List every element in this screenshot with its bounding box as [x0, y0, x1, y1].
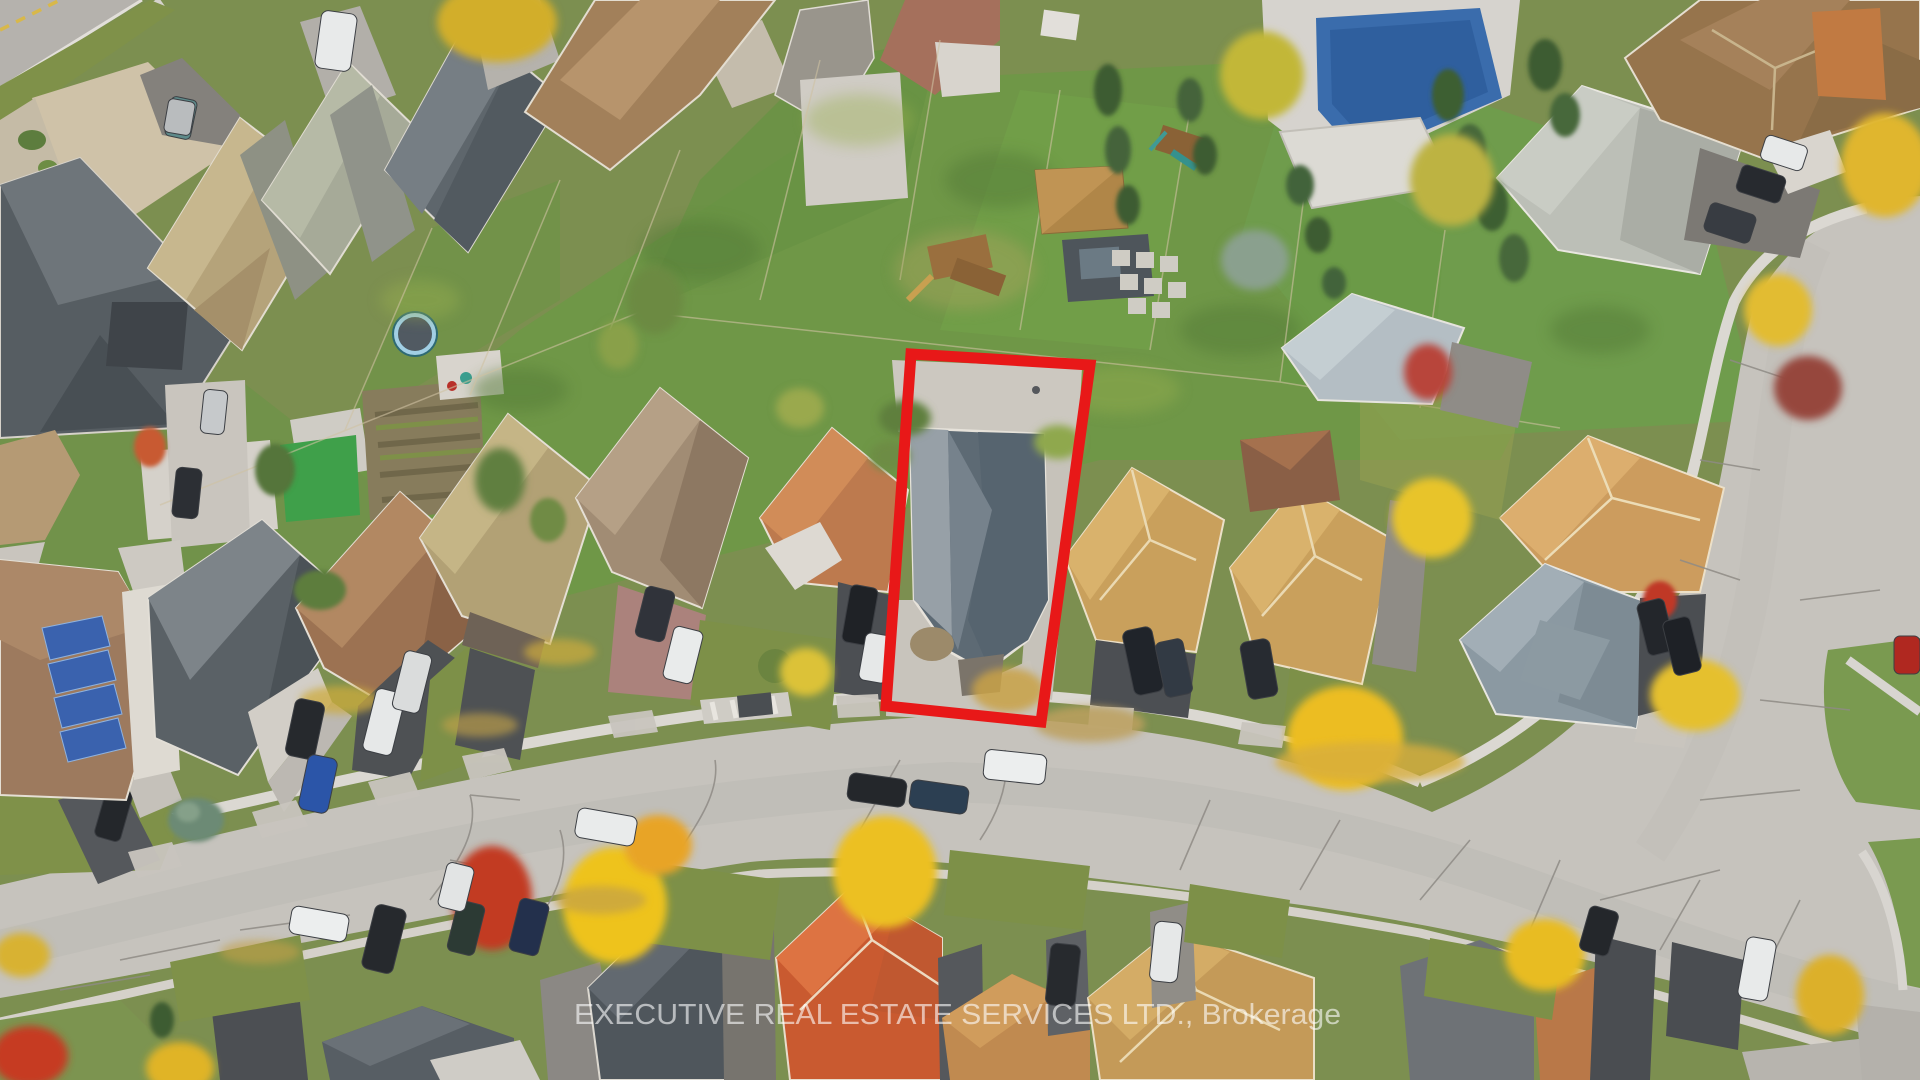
svg-text:EXECUTIVE REAL ESTATE SERVICES: EXECUTIVE REAL ESTATE SERVICES LTD., Bro… — [574, 999, 1341, 1031]
